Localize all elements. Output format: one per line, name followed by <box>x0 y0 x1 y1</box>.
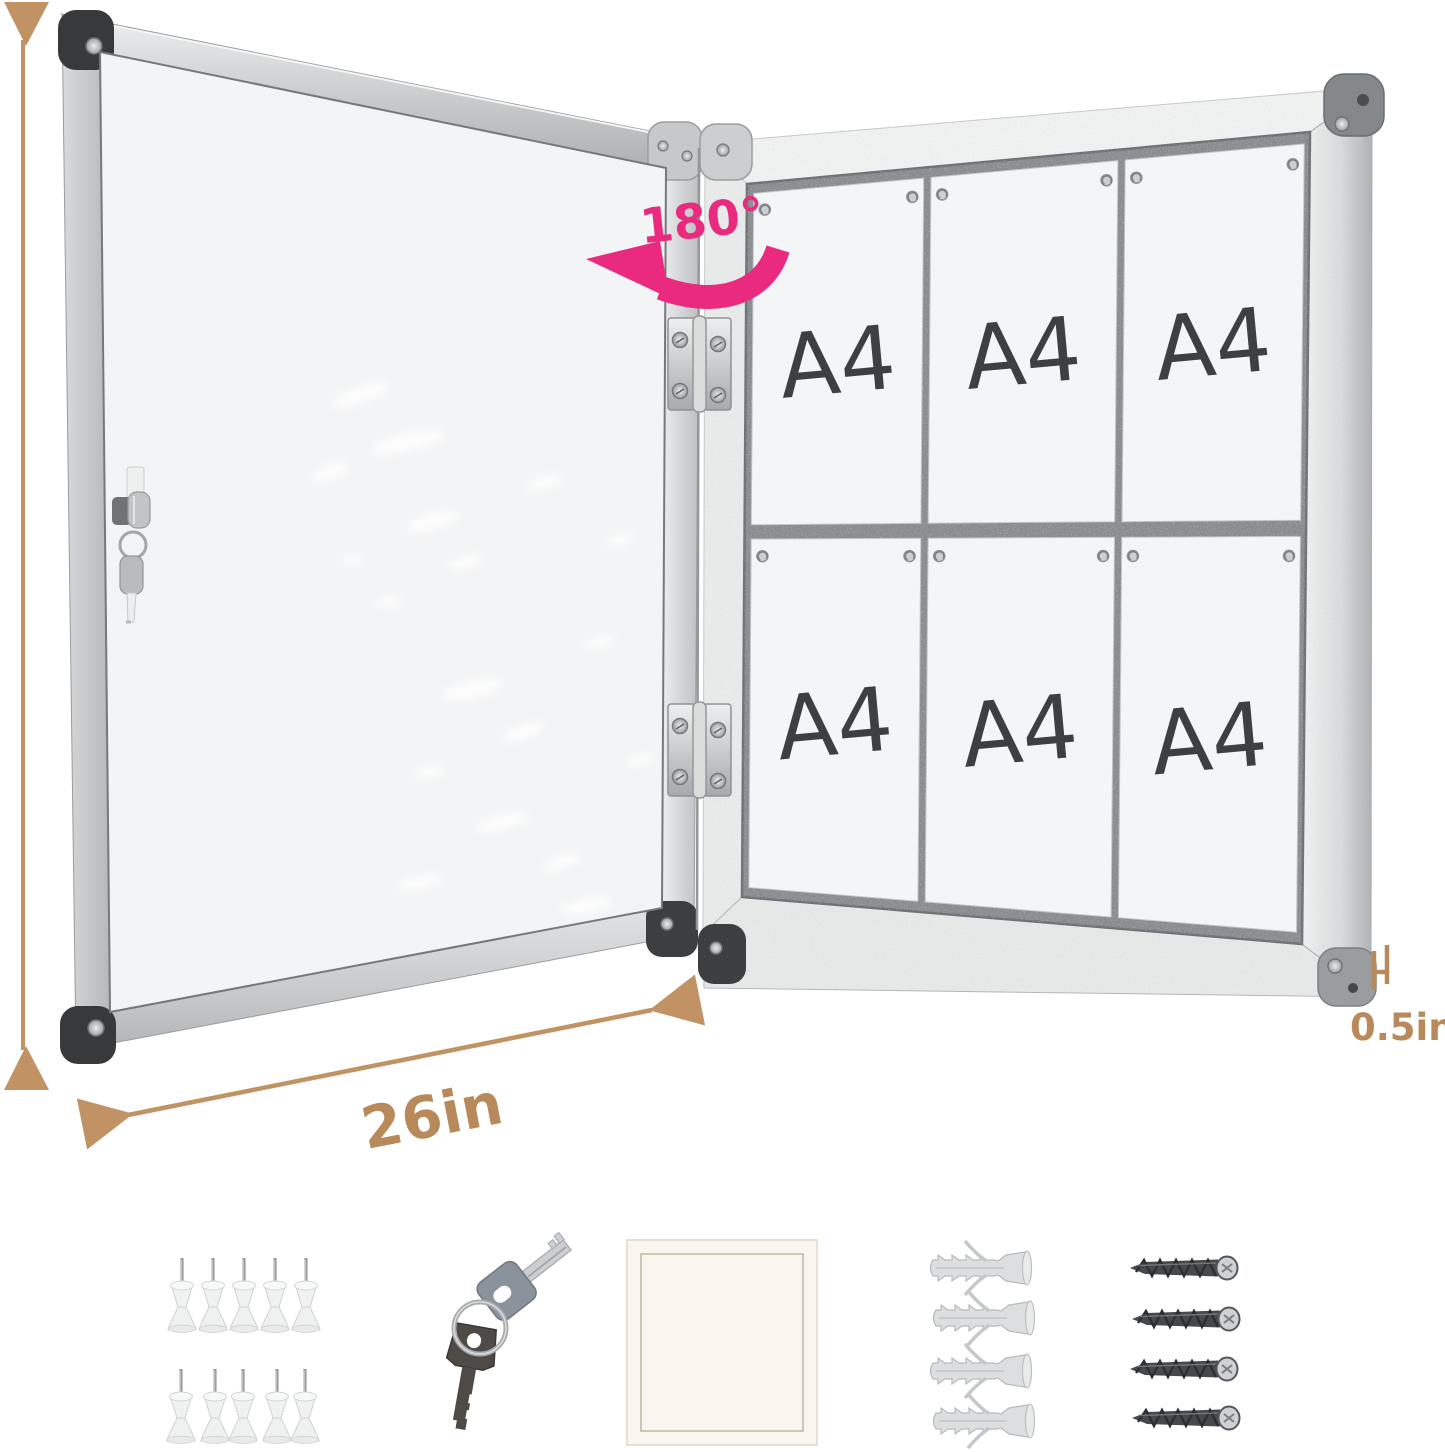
board-corner-cap <box>698 924 746 984</box>
arrow-down-icon <box>4 1046 49 1090</box>
door-panel <box>58 10 702 1064</box>
a4-paper-label: A4 <box>1150 288 1275 401</box>
corner-screw-icon <box>710 942 722 954</box>
pushpins-group <box>167 1258 320 1443</box>
lock-cylinder <box>128 492 150 528</box>
push-pin-icon <box>261 1258 289 1332</box>
key-lower <box>435 1322 501 1434</box>
mounting-screw-icon <box>1132 1407 1240 1430</box>
push-pin-icon <box>230 1258 258 1332</box>
door-glass <box>100 52 666 1012</box>
arrow-right-icon <box>649 975 705 1026</box>
push-pin-icon <box>168 1258 196 1332</box>
width-label: 26in <box>356 1069 508 1163</box>
door-corner-cap <box>60 1006 116 1064</box>
key-blade <box>127 593 136 622</box>
key-upper <box>474 1225 582 1323</box>
corner-screw-icon <box>682 151 692 161</box>
keys-group <box>435 1225 582 1434</box>
corner-screw-hole <box>1357 94 1369 106</box>
board-corner-cap <box>1324 74 1384 136</box>
product-illustration: 28in <box>0 0 1445 1452</box>
mounting-screw-icon <box>1132 1308 1240 1331</box>
a4-paper: A4 <box>1118 536 1300 932</box>
board-corner-cap <box>1318 948 1376 1006</box>
a4-paper-label: A4 <box>772 667 897 780</box>
push-pin-icon <box>292 1258 320 1332</box>
mounting-square <box>627 1240 817 1445</box>
depth-label: 0.5in <box>1350 1006 1445 1049</box>
key-head <box>120 556 143 594</box>
a4-paper-label: A4 <box>960 297 1085 410</box>
corner-screw-icon <box>658 141 668 151</box>
push-pin-icon <box>263 1369 291 1443</box>
wall-anchor-icon <box>931 1241 1032 1295</box>
a4-paper: A4 <box>749 538 921 901</box>
a4-paper-label: A4 <box>775 306 900 419</box>
a4-paper: A4 <box>1122 144 1304 522</box>
wall-anchor-icon <box>934 1291 1035 1345</box>
push-pin-icon <box>201 1369 229 1443</box>
push-pin-icon <box>291 1369 319 1443</box>
hinge-bottom <box>668 702 731 798</box>
mounting-screw-icon <box>1130 1358 1238 1381</box>
hinge-top <box>668 316 731 412</box>
corner-screw-icon <box>717 144 729 156</box>
push-pin-icon <box>199 1258 227 1332</box>
a4-paper-label: A4 <box>957 675 1082 788</box>
wall-anchor-icon <box>934 1394 1035 1448</box>
anchors-group <box>931 1241 1035 1448</box>
a4-paper: A4 <box>751 178 923 525</box>
wall-anchor-icon <box>931 1344 1032 1398</box>
accessories <box>167 1225 1240 1448</box>
a4-paper-label: A4 <box>1147 682 1272 795</box>
arrow-up-icon <box>4 2 49 46</box>
corner-screw-icon <box>1328 959 1342 973</box>
corner-screw-icon <box>88 1020 104 1036</box>
corner-screw-hole <box>1348 983 1358 993</box>
a4-paper: A4 <box>925 537 1114 917</box>
board-panel: A4A4A4A4A4A4 <box>698 74 1384 1006</box>
push-pin-icon <box>229 1369 257 1443</box>
screws-group <box>1130 1257 1240 1430</box>
push-pin-icon <box>167 1369 195 1443</box>
mounting-screw-icon <box>1130 1257 1238 1280</box>
corner-screw-icon <box>661 918 673 930</box>
corner-screw-icon <box>1335 117 1349 131</box>
a4-paper: A4 <box>928 161 1118 524</box>
arrow-left-icon <box>77 1099 133 1150</box>
depth-bracket-icon <box>1374 945 1387 990</box>
